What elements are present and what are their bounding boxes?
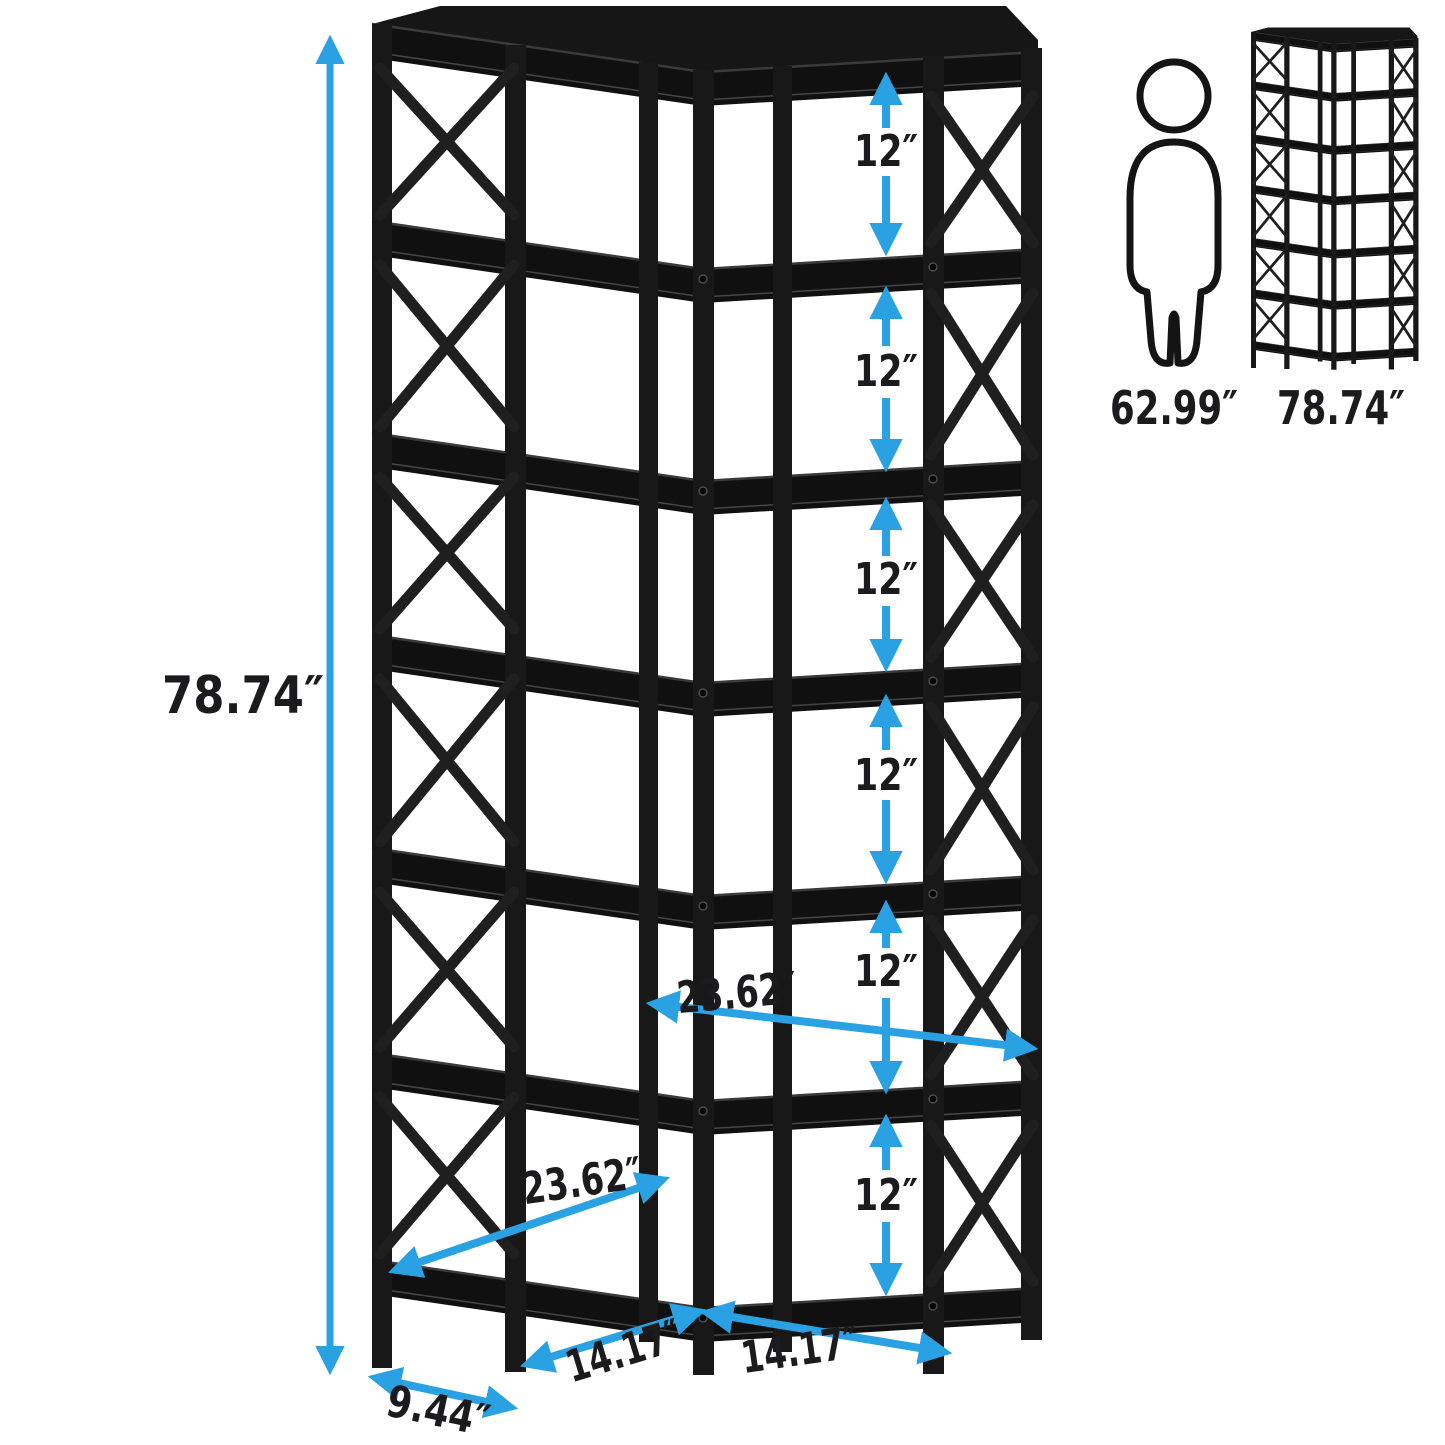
tier-gap-label-4: 12″ <box>854 750 918 801</box>
dimension-diagram-canvas: 78.74″ 12″ 12″ 12″ 12″ 12″ 12″ 23.62″ <box>0 0 1445 1445</box>
person-height-label: 62.99″ <box>1110 381 1238 435</box>
right-wing-width-label: 23.62″ <box>675 963 799 1024</box>
mini-bookshelf-illustration <box>1251 28 1419 370</box>
tier-gap-annotation-4: 12″ <box>854 702 918 876</box>
corner-bookshelf-illustration <box>372 6 1042 1375</box>
person-silhouette-icon <box>1130 62 1218 363</box>
tier-gap-annotation-1: 12″ <box>854 80 918 248</box>
tier-gap-label-2: 12″ <box>854 346 918 397</box>
base-depth-label: 9.44″ <box>382 1376 494 1445</box>
tier-gap-annotation-2: 12″ <box>854 294 918 464</box>
tier-gap-label-5: 12″ <box>854 946 918 997</box>
left-wing-width-label: 23.62″ <box>519 1148 645 1215</box>
tier-gap-label-6: 12″ <box>854 1170 918 1221</box>
product-dimension-image: 78.74″ 12″ 12″ 12″ 12″ 12″ 12″ 23.62″ <box>0 0 1445 1445</box>
total-height-annotation: 78.74″ <box>162 42 330 1368</box>
size-reference-panel: 62.99″ 78.74″ <box>1110 28 1419 436</box>
mini-bookshelf-height-label: 78.74″ <box>1277 381 1405 435</box>
total-height-label: 78.74″ <box>162 666 324 726</box>
tier-gap-label-3: 12″ <box>854 554 918 605</box>
base-depth-annotation: 9.44″ <box>376 1376 510 1445</box>
tier-gap-annotation-5: 12″ <box>854 908 918 1086</box>
tier-gap-label-1: 12″ <box>854 126 918 177</box>
tier-gap-annotation-6: 12″ <box>854 1122 918 1288</box>
tier-gap-annotation-3: 12″ <box>854 505 918 664</box>
